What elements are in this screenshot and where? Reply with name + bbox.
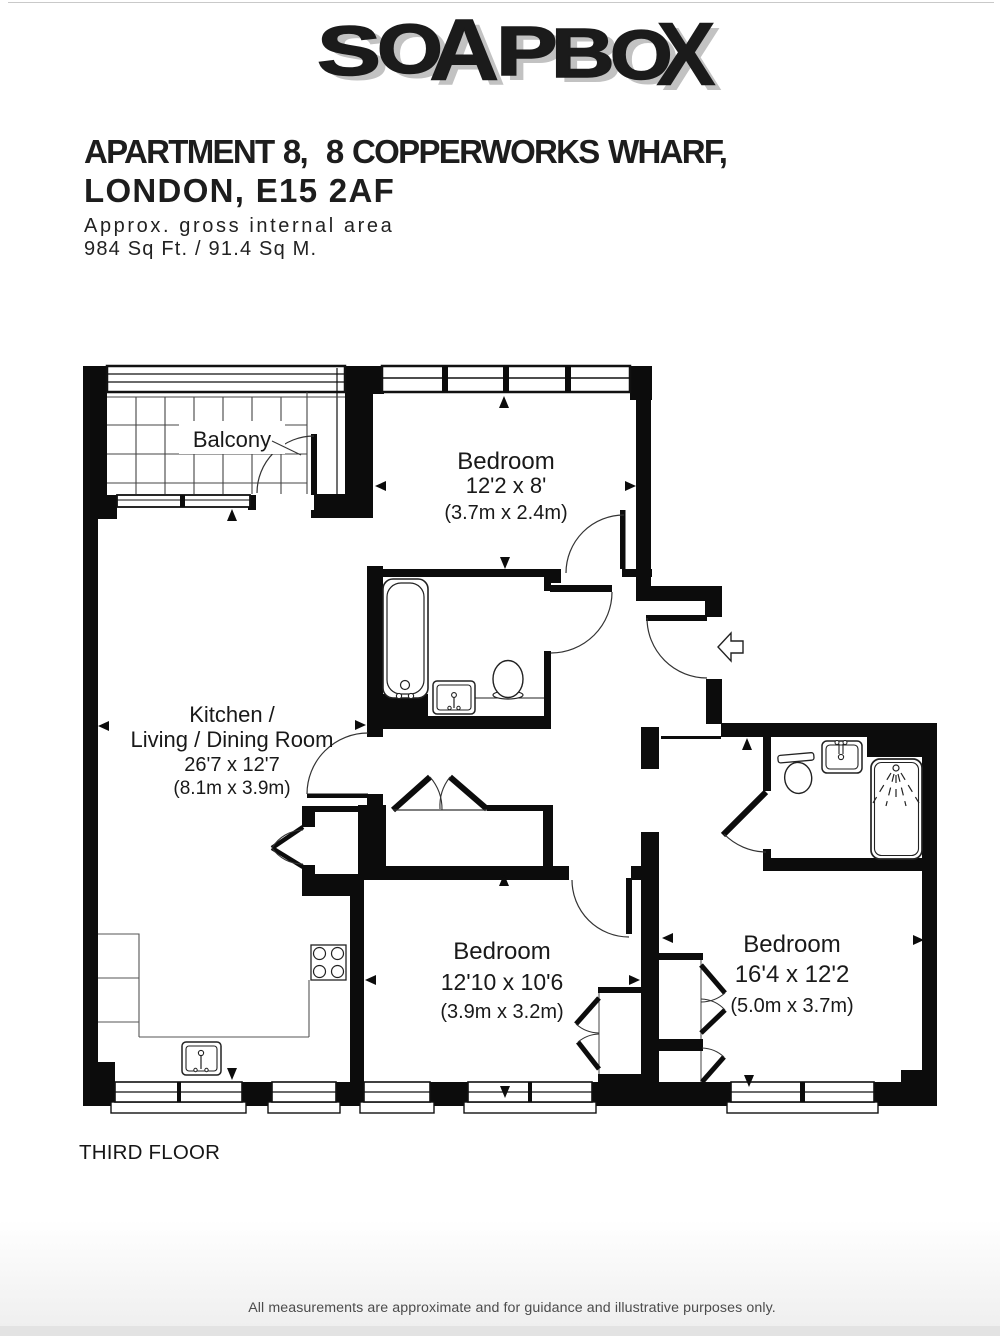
svg-text:Kitchen /: Kitchen / [189, 702, 275, 727]
svg-text:Balcony: Balcony [193, 427, 271, 452]
svg-text:12'10 x 10'6: 12'10 x 10'6 [441, 969, 564, 995]
svg-text:16'4 x 12'2: 16'4 x 12'2 [735, 961, 850, 988]
svg-text:Bedroom: Bedroom [453, 938, 550, 965]
svg-text:26'7 x 12'7: 26'7 x 12'7 [184, 754, 280, 776]
svg-text:12'2 x 8': 12'2 x 8' [466, 473, 547, 498]
svg-text:Living / Dining Room: Living / Dining Room [131, 727, 334, 752]
svg-text:(5.0m x 3.7m): (5.0m x 3.7m) [730, 995, 853, 1017]
svg-text:(3.9m x 3.2m): (3.9m x 3.2m) [440, 1001, 563, 1023]
svg-text:(8.1m x 3.9m): (8.1m x 3.9m) [173, 778, 290, 799]
svg-text:Bedroom: Bedroom [457, 448, 554, 475]
svg-text:(3.7m x 2.4m): (3.7m x 2.4m) [444, 502, 567, 524]
svg-text:Bedroom: Bedroom [743, 931, 840, 958]
